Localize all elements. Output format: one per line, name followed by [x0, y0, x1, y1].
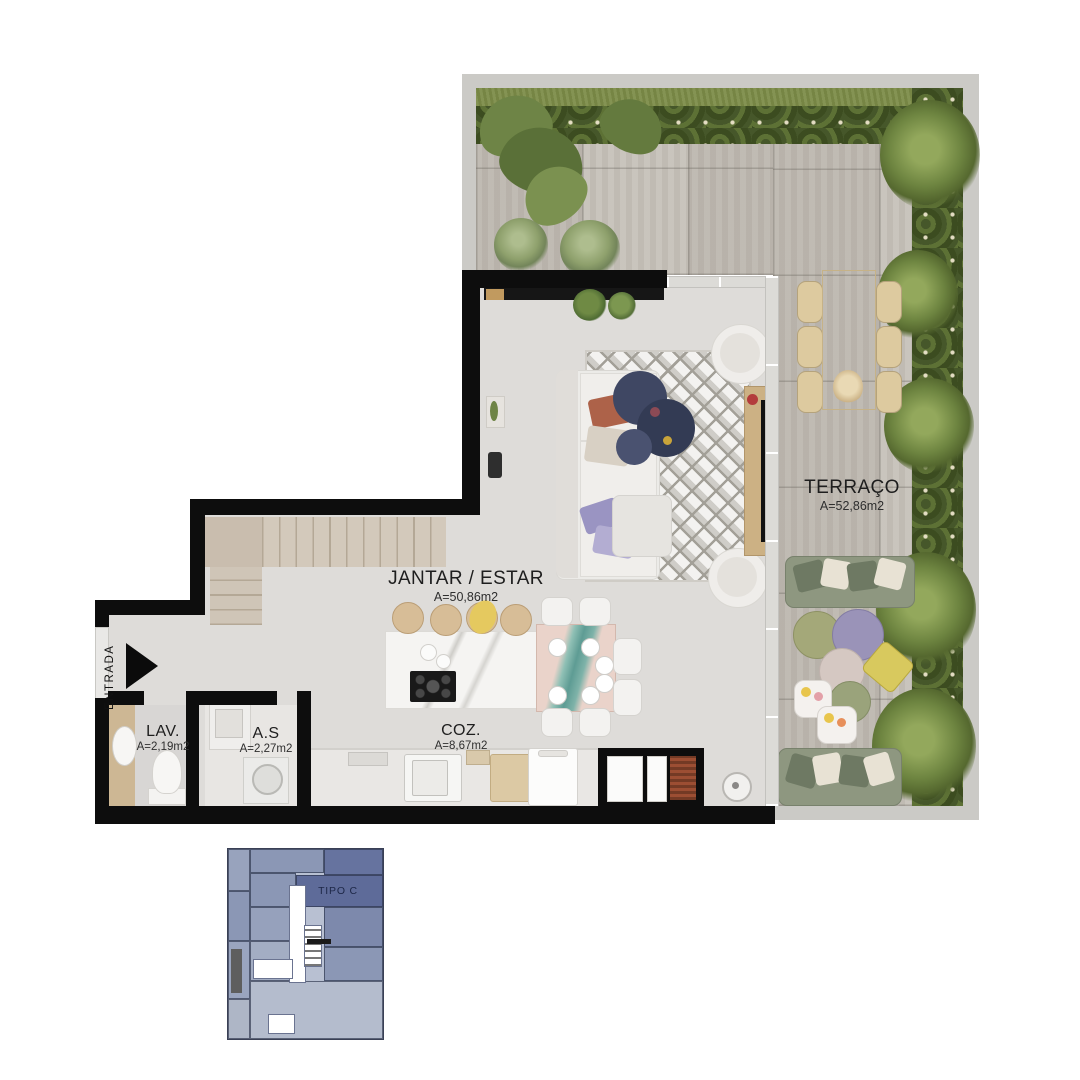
coffee-table [616, 429, 652, 465]
washing-machine-door [252, 764, 283, 795]
wall [190, 499, 205, 615]
wall [462, 270, 667, 288]
table-decor [650, 407, 660, 417]
keyplan-block [324, 947, 383, 981]
island-plate [436, 654, 451, 669]
room-area: A=2,19m2 [137, 742, 190, 755]
kitchen-sink-basin [412, 760, 448, 796]
wall [95, 600, 109, 627]
food-plate [824, 713, 834, 723]
terrace-chair [797, 281, 823, 323]
bar-stool [392, 602, 424, 634]
place-setting [595, 674, 614, 693]
table-decor [833, 370, 863, 404]
place-setting [581, 638, 600, 657]
shrub-plant-icon [494, 218, 548, 272]
keyplan-stair-arrow [307, 939, 331, 944]
terrace-chair [797, 371, 823, 413]
cooktop [410, 671, 456, 702]
wall-vase [488, 452, 502, 478]
fern-plant-icon [880, 100, 980, 210]
wall-art-leaf [490, 401, 498, 421]
wall [462, 270, 480, 515]
room-name: A.S [240, 725, 293, 743]
wall [190, 499, 476, 515]
bar-stool [430, 604, 462, 636]
terrace-chair [876, 371, 902, 413]
terrace-wall-left [462, 74, 476, 274]
service-door-panel [647, 756, 667, 802]
dining-chair [541, 597, 573, 626]
floor-drain-dot [732, 782, 739, 789]
dining-chair [579, 597, 611, 626]
terrace-chair [876, 281, 902, 323]
room-label-terraco: TERRAÇO A=52,86m2 [804, 477, 900, 513]
keyplan-block [228, 999, 250, 1039]
keyplan-shaft [231, 949, 242, 993]
stair-closet [205, 517, 264, 567]
keyplan-block [324, 907, 383, 947]
potted-plant-icon [573, 289, 607, 321]
keyplan-label: TIPO C [318, 885, 358, 897]
keyplan-block-highlight [324, 849, 383, 875]
room-label-lav: LAV. A=2,19m2 [137, 723, 190, 755]
keyplan-corridor [268, 1014, 295, 1034]
place-setting [548, 686, 567, 705]
wall [186, 691, 277, 705]
armchair-cushion [720, 333, 760, 373]
entrance-arrow-icon [126, 643, 158, 689]
bar-stool [500, 604, 532, 636]
wall [95, 600, 205, 615]
toilet-bowl [152, 750, 182, 794]
dining-chair [613, 638, 642, 675]
wall [297, 691, 311, 806]
food-plate [801, 687, 811, 697]
room-label-as: A.S A=2,27m2 [240, 725, 293, 757]
room-name: LAV. [137, 723, 190, 741]
room-area: A=8,67m2 [435, 741, 488, 754]
food-plate [814, 692, 823, 701]
terrace-grass-top [476, 88, 916, 106]
room-area: A=50,86m2 [388, 590, 544, 604]
armchair-cushion [717, 557, 757, 597]
staircase-lower-run [210, 567, 262, 625]
dining-chair [541, 708, 573, 737]
table-decor [663, 436, 672, 445]
island-plate [420, 644, 437, 661]
keyplan-stair-icon [304, 925, 322, 967]
dining-chair [579, 708, 611, 737]
ottoman [612, 495, 672, 557]
room-label-coz: COZ. A=8,67m2 [435, 722, 488, 754]
room-name: JANTAR / ESTAR [388, 568, 544, 590]
counter-tray [348, 752, 388, 766]
terrace-chair [797, 326, 823, 368]
potted-plant-icon [608, 292, 636, 320]
sofa-back [556, 370, 578, 578]
staircase-upper-run [262, 517, 446, 567]
keyplan [227, 848, 384, 1040]
place-setting [548, 638, 567, 657]
entrance-label: ENTRADA [104, 630, 116, 710]
fridge-handle [538, 750, 568, 757]
service-door-panel [607, 756, 643, 802]
room-label-jantar-estar: JANTAR / ESTAR A=50,86m2 [388, 568, 544, 604]
room-area: A=2,27m2 [240, 744, 293, 757]
room-name: TERRAÇO [804, 477, 900, 499]
terrace-wall-bottom [773, 806, 979, 820]
place-setting [595, 656, 614, 675]
keyplan-corridor [253, 959, 293, 979]
terrace-wall-top [462, 74, 979, 88]
wall [95, 806, 775, 824]
food-plate [837, 718, 846, 727]
keyplan-block [228, 849, 250, 891]
glass-wall [667, 276, 773, 288]
glass-wall [765, 276, 779, 806]
kitchen-island [385, 631, 537, 709]
keyplan-block [228, 891, 250, 941]
room-name: COZ. [435, 722, 488, 740]
lav-sink [112, 726, 137, 766]
doormat [670, 756, 696, 800]
flower-vase [747, 394, 758, 405]
floorplan-page: { "plan": { "rooms": [ { "id": "terraco"… [0, 0, 1080, 1080]
room-area: A=52,86m2 [804, 499, 900, 513]
dining-chair [613, 679, 642, 716]
terrace-chair [876, 326, 902, 368]
keyplan-block [250, 849, 324, 873]
sideboard-wood [486, 289, 504, 300]
